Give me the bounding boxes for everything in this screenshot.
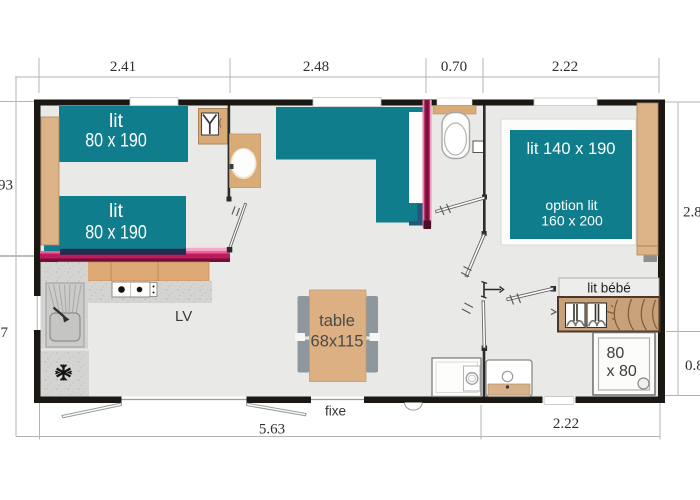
svg-text:option lit: option lit: [545, 197, 597, 213]
svg-text:0.70: 0.70: [441, 59, 467, 75]
svg-text:80 x 190: 80 x 190: [85, 222, 147, 244]
svg-text:x 80: x 80: [607, 363, 637, 380]
svg-text:2.22: 2.22: [552, 59, 578, 75]
svg-text:LV: LV: [175, 308, 192, 325]
svg-text:2.22: 2.22: [553, 416, 579, 432]
svg-text:0.85: 0.85: [685, 358, 700, 374]
svg-text:table: table: [319, 312, 355, 330]
svg-text:lit bébé: lit bébé: [587, 281, 631, 296]
svg-text:1.93: 1.93: [0, 178, 13, 194]
svg-text:0.77: 0.77: [0, 325, 9, 341]
svg-text:80 x 190: 80 x 190: [85, 130, 147, 152]
svg-text:2.48: 2.48: [303, 59, 329, 75]
svg-text:lit: lit: [109, 200, 124, 222]
svg-text:2.41: 2.41: [110, 59, 136, 75]
svg-text:2.85: 2.85: [683, 205, 700, 221]
svg-text:80: 80: [607, 345, 625, 362]
svg-text:68x115: 68x115: [311, 333, 364, 351]
svg-text:lit 140 x 190: lit 140 x 190: [527, 140, 616, 158]
svg-text:fixe: fixe: [325, 404, 346, 419]
svg-text:5.63: 5.63: [259, 422, 285, 438]
svg-text:160 x 200: 160 x 200: [541, 213, 603, 229]
